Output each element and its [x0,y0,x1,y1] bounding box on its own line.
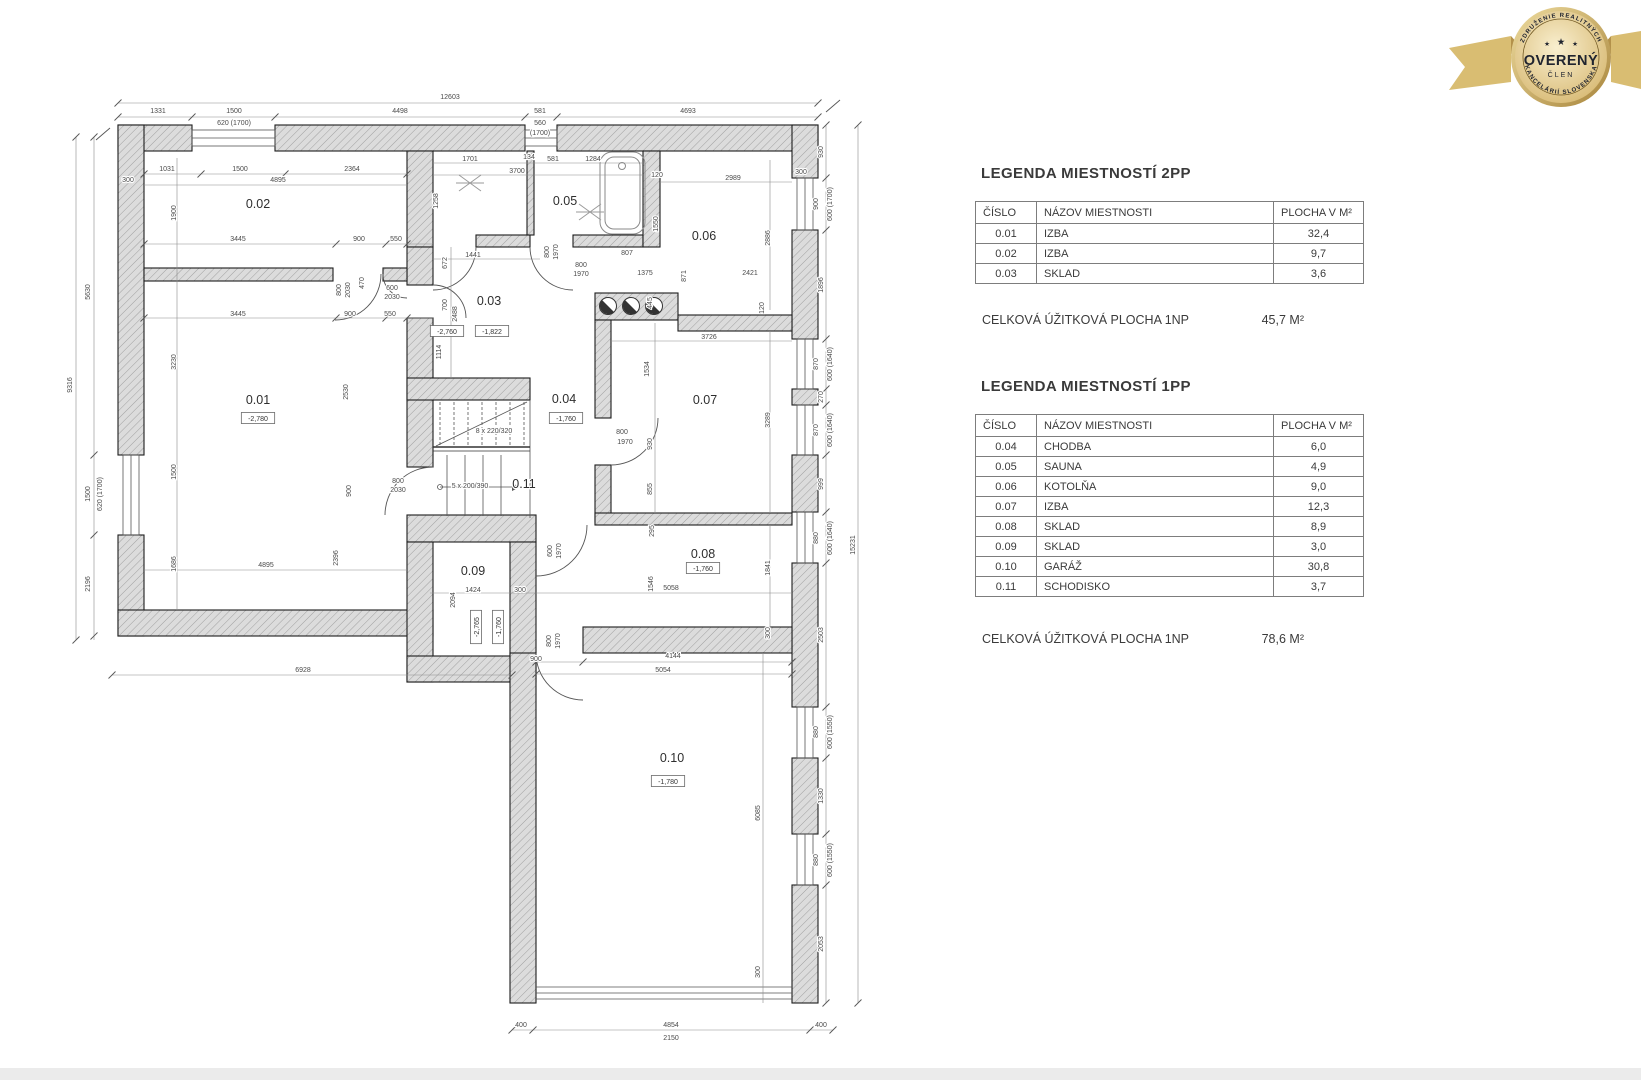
dimension-label: 120 [651,172,663,179]
dimension-label: 880 [813,532,820,544]
table-cell: 9,7 [1274,244,1364,264]
dimension-label: 120 [759,302,766,314]
dimension-label: 600 (1550) [827,715,834,749]
total-value: 78,6 M² [1262,632,1304,646]
dimension-label: 300 [514,587,526,594]
table-cell: 30,8 [1274,557,1364,577]
dimension-label: 550 [390,236,402,243]
dimension-label: 900 [353,236,365,243]
dimension-label: 1500 [226,108,242,115]
dimension-label: 1441 [465,252,481,259]
dimension-label: 581 [547,156,559,163]
table-row: 0.04CHODBA6,0 [976,437,1364,457]
total-area-1pp: CELKOVÁ ÚŽITKOVÁ PLOCHA 1NP 78,6 M² [975,632,1328,646]
elevation-marker: -1,780 [651,776,684,787]
table-cell: 0.07 [976,497,1037,517]
dimension-label: 800 [392,478,404,485]
dimension-label: 300 [765,627,772,639]
table-cell: 0.09 [976,537,1037,557]
dimension-label: 1900 [171,205,178,221]
dimension-label: 700 [442,299,449,311]
table-header-row: ČÍSLO NÁZOV MIESTNOSTI PLOCHA V M² [976,415,1364,437]
dimension-label: 871 [681,270,688,282]
svg-text:-1,760: -1,760 [556,416,576,423]
dimension-label: 2196 [85,576,92,592]
dimension-label: 5054 [655,667,671,674]
dimension-label: 855 [647,483,654,495]
svg-text:-1,780: -1,780 [658,779,678,786]
dimension-label: 1970 [617,439,633,446]
dimension-label: 900 [530,656,542,663]
table-cell: 0.02 [976,244,1037,264]
column-header-nazov: NÁZOV MIESTNOSTI [1037,415,1274,437]
table-cell: IZBA [1037,497,1274,517]
table-row: 0.03SKLAD3,6 [976,264,1364,284]
room-number-label: 0.08 [691,547,715,561]
dimension-label: 1031 [159,166,175,173]
dimension-label: 2989 [725,175,741,182]
table-row: 0.06KOTOLŇA9,0 [976,477,1364,497]
table-cell: 32,4 [1274,224,1364,244]
table-cell: GARÁŽ [1037,557,1274,577]
dimension-label: 2421 [742,270,758,277]
dimension-label: 300 [755,966,762,978]
star-icon: ★ [1557,37,1566,48]
dimension-label: 600 (1700) [827,187,834,221]
dimension-label: 1970 [556,543,563,559]
table-cell: 0.04 [976,437,1037,457]
room-number-label: 0.02 [246,197,270,211]
dimension-label: 900 [344,311,356,318]
dimension-label: 4854 [663,1022,679,1029]
dimension-label: 1500 [85,486,92,502]
fixtures [456,152,663,315]
table-cell: SKLAD [1037,517,1274,537]
dimension-label: 470 [359,277,366,289]
legend-title-2pp: LEGENDA MIESTNOSTÍ 2PP [981,165,1328,182]
table-cell: SKLAD [1037,264,1274,284]
dimension-label: 620 (1700) [97,477,104,511]
dimension-label: 400 [515,1022,527,1029]
svg-text:-2,765: -2,765 [474,617,481,637]
dimension-label: 3230 [171,354,178,370]
dimension-label: 2053 [818,936,825,952]
legend-panel: LEGENDA MIESTNOSTÍ 2PP ČÍSLO NÁZOV MIEST… [975,165,1328,646]
svg-text:-1,822: -1,822 [482,329,502,336]
dimension-label: 870 [813,424,820,436]
svg-text:-2,760: -2,760 [437,329,457,336]
dimension-label: 6085 [755,805,762,821]
dimension-label: 3700 [509,168,525,175]
dimension-label: 900 [346,485,353,497]
badge-center-text: OVERENÝ [1524,51,1598,69]
dimension-label: 400 [815,1022,827,1029]
table-cell: 0.10 [976,557,1037,577]
dimension-label: 600 (1640) [827,413,834,447]
dimension-label: 1534 [644,361,651,377]
dimension-label: 300 [122,177,134,184]
dimension-label: 2150 [663,1035,679,1042]
column-header-plocha: PLOCHA V M² [1274,415,1364,437]
table-row: 0.07IZBA12,3 [976,497,1364,517]
elevation-marker: -2,780 [241,413,274,424]
dimension-label: 5 x 200/390 [452,483,489,490]
dimension-label: 800 [575,262,587,269]
dimension-label: 550 [384,311,396,318]
dimension-label: 1500 [232,166,248,173]
dimension-label: 2030 [390,487,406,494]
table-cell: 3,7 [1274,577,1364,597]
dimension-label: 1375 [637,270,653,277]
star-icon: ★ [1572,40,1578,48]
dimension-label: 930 [818,146,825,158]
dimension-label: 870 [813,358,820,370]
table-cell: 0.06 [976,477,1037,497]
dimension-label: 560 [534,120,546,127]
page: 1260313311500620 (1700)4498581560(1700)4… [0,0,1641,1080]
table-cell: 3,6 [1274,264,1364,284]
svg-text:-2,780: -2,780 [248,416,268,423]
dimension-label: 1331 [150,108,166,115]
table-cell: SCHODISKO [1037,577,1274,597]
dimension-label: 4498 [392,108,408,115]
dimension-label: 6928 [295,667,311,674]
dimension-label: 2030 [384,294,400,301]
bathtub [600,152,645,234]
dimension-label: 930 [647,438,654,450]
dimension-label: 4895 [270,177,286,184]
room-number-label: 0.09 [461,564,485,578]
table-header-row: ČÍSLO NÁZOV MIESTNOSTI PLOCHA V M² [976,202,1364,224]
star-icon: ★ [1544,40,1550,48]
dimension-label: 600 [547,545,554,557]
dimension-label: 5630 [85,284,92,300]
dimension-label: 1970 [555,633,562,649]
dimension-label: 581 [534,108,546,115]
table-cell: 0.05 [976,457,1037,477]
dimension-label: 900 [813,198,820,210]
table-row: 0.08SKLAD8,9 [976,517,1364,537]
dimension-label: 800 [546,635,553,647]
table-cell: 8,9 [1274,517,1364,537]
table-cell: IZBA [1037,224,1274,244]
dimension-label: 2503 [818,627,825,643]
dimension-label: 1550 [653,216,660,232]
table-cell: 12,3 [1274,497,1364,517]
dimension-label: 4693 [680,108,696,115]
elevation-marker: -2,760 [430,326,463,337]
table-cell: KOTOLŇA [1037,477,1274,497]
table-cell: 0.08 [976,517,1037,537]
dimension-label: 3289 [765,412,772,428]
svg-text:-1,760: -1,760 [496,617,503,637]
dimension-label: 134 [523,154,535,161]
dimension-label: 1258 [433,193,440,209]
dimension-label: 800 [336,284,343,296]
dimension-label: 807 [621,250,633,257]
room-number-label: 0.05 [553,194,577,208]
elevation-marker: -1,760 [549,413,582,424]
elevation-marker: -2,765 [471,610,482,643]
dimension-label: 2530 [343,384,350,400]
dimension-label: 2886 [765,230,772,246]
dimension-label: 999 [818,478,825,490]
column-header-nazov: NÁZOV MIESTNOSTI [1037,202,1274,224]
dimension-label: 1284 [585,156,601,163]
room-number-label: 0.03 [477,294,501,308]
floor-plan-drawing: 1260313311500620 (1700)4498581560(1700)4… [0,0,900,1080]
dimension-label: 800 [616,429,628,436]
elevation-marker: -1,822 [475,326,508,337]
table-cell: SAUNA [1037,457,1274,477]
dimension-label: 1970 [553,244,560,260]
dimension-label: 2364 [344,166,360,173]
table-row: 0.10GARÁŽ30,8 [976,557,1364,577]
table-cell: SKLAD [1037,537,1274,557]
dimension-label: 270 [818,391,825,403]
verified-badge: ZDRUŽENIE REALITNÝCH ★ ★ ★ OVERENÝ ČLEN … [1391,0,1641,125]
column-header-plocha: PLOCHA V M² [1274,202,1364,224]
table-row: 0.11SCHODISKO3,7 [976,577,1364,597]
dimension-label: 2396 [333,550,340,566]
dimension-label: 1896 [818,277,825,293]
dimension-label: 300 [795,169,807,176]
total-label: CELKOVÁ ÚŽITKOVÁ PLOCHA 1NP [982,632,1189,646]
table-cell: 0.01 [976,224,1037,244]
room-number-label: 0.04 [552,392,576,406]
dimension-label: 3445 [230,236,246,243]
room-number-label: 0.07 [693,393,717,407]
dimension-label: 2094 [450,592,457,608]
table-cell: 3,0 [1274,537,1364,557]
dimension-label: 672 [442,257,449,269]
table-row: 0.02IZBA9,7 [976,244,1364,264]
total-label: CELKOVÁ ÚŽITKOVÁ PLOCHA 1NP [982,313,1189,327]
table-cell: 0.03 [976,264,1037,284]
table-cell: 4,9 [1274,457,1364,477]
room-number-label: 0.10 [660,751,684,765]
dimension-label: 1330 [818,788,825,804]
dimension-label: 880 [813,854,820,866]
dimension-label: 880 [813,726,820,738]
dimension-label: 4144 [665,653,681,660]
dimension-label: 2488 [452,306,459,322]
dimension-label: 1546 [648,576,655,592]
dimension-label: 1686 [171,556,178,572]
table-cell: 0.11 [976,577,1037,597]
table-cell: IZBA [1037,244,1274,264]
dimension-label: 600 (1640) [827,521,834,555]
dimension-label: 5058 [663,585,679,592]
dimension-label: (1700) [530,130,550,137]
total-area-2pp: CELKOVÁ ÚŽITKOVÁ PLOCHA 1NP 45,7 M² [975,313,1328,327]
elevation-marker: -1,760 [493,610,504,643]
dimension-label: 8 x 220/320 [476,428,513,435]
svg-text:-1,760: -1,760 [693,566,713,573]
dimension-label: 1701 [462,156,478,163]
room-number-label: 0.01 [246,393,270,407]
room-number-label: 0.11 [512,477,535,491]
dimension-label: 4895 [258,562,274,569]
table-cell: CHODBA [1037,437,1274,457]
dimension-label: 3445 [230,311,246,318]
badge-sub-text: ČLEN [1548,70,1575,79]
column-header-cislo: ČÍSLO [976,202,1037,224]
total-value: 45,7 M² [1262,313,1304,327]
dimension-label: 1114 [436,345,443,360]
dimension-label: 600 [386,285,398,292]
table-row: 0.01IZBA32,4 [976,224,1364,244]
page-edge [0,1068,1641,1080]
dimension-label: 1500 [171,464,178,480]
dimension-label: 445 [647,297,654,309]
dimension-label: 1970 [573,271,589,278]
dimension-label: 2030 [345,282,352,298]
table-cell: 6,0 [1274,437,1364,457]
dimension-label: 800 [544,246,551,258]
dimension-label: 600 (1640) [827,347,834,381]
column-header-cislo: ČÍSLO [976,415,1037,437]
dimension-label: 12603 [440,94,460,101]
table-cell: 9,0 [1274,477,1364,497]
table-row: 0.05SAUNA4,9 [976,457,1364,477]
room-number-label: 0.06 [692,229,716,243]
table-row: 0.09SKLAD3,0 [976,537,1364,557]
staircase [433,400,530,518]
legend-table-1pp: ČÍSLO NÁZOV MIESTNOSTI PLOCHA V M² 0.04C… [975,414,1364,597]
elevation-marker: -1,760 [686,563,719,574]
dimension-label: 9316 [67,377,74,393]
legend-table-2pp: ČÍSLO NÁZOV MIESTNOSTI PLOCHA V M² 0.01I… [975,201,1364,284]
legend-title-1pp: LEGENDA MIESTNOSTÍ 1PP [981,378,1328,395]
dimension-label: 1424 [465,587,481,594]
dimension-label: 620 (1700) [217,120,251,127]
dimension-label: 600 (1550) [827,843,834,877]
dimension-label: 295 [649,525,656,537]
dimension-label: 3726 [701,334,717,341]
dimension-label: 1841 [765,560,772,576]
dimension-label: 15231 [850,535,857,555]
